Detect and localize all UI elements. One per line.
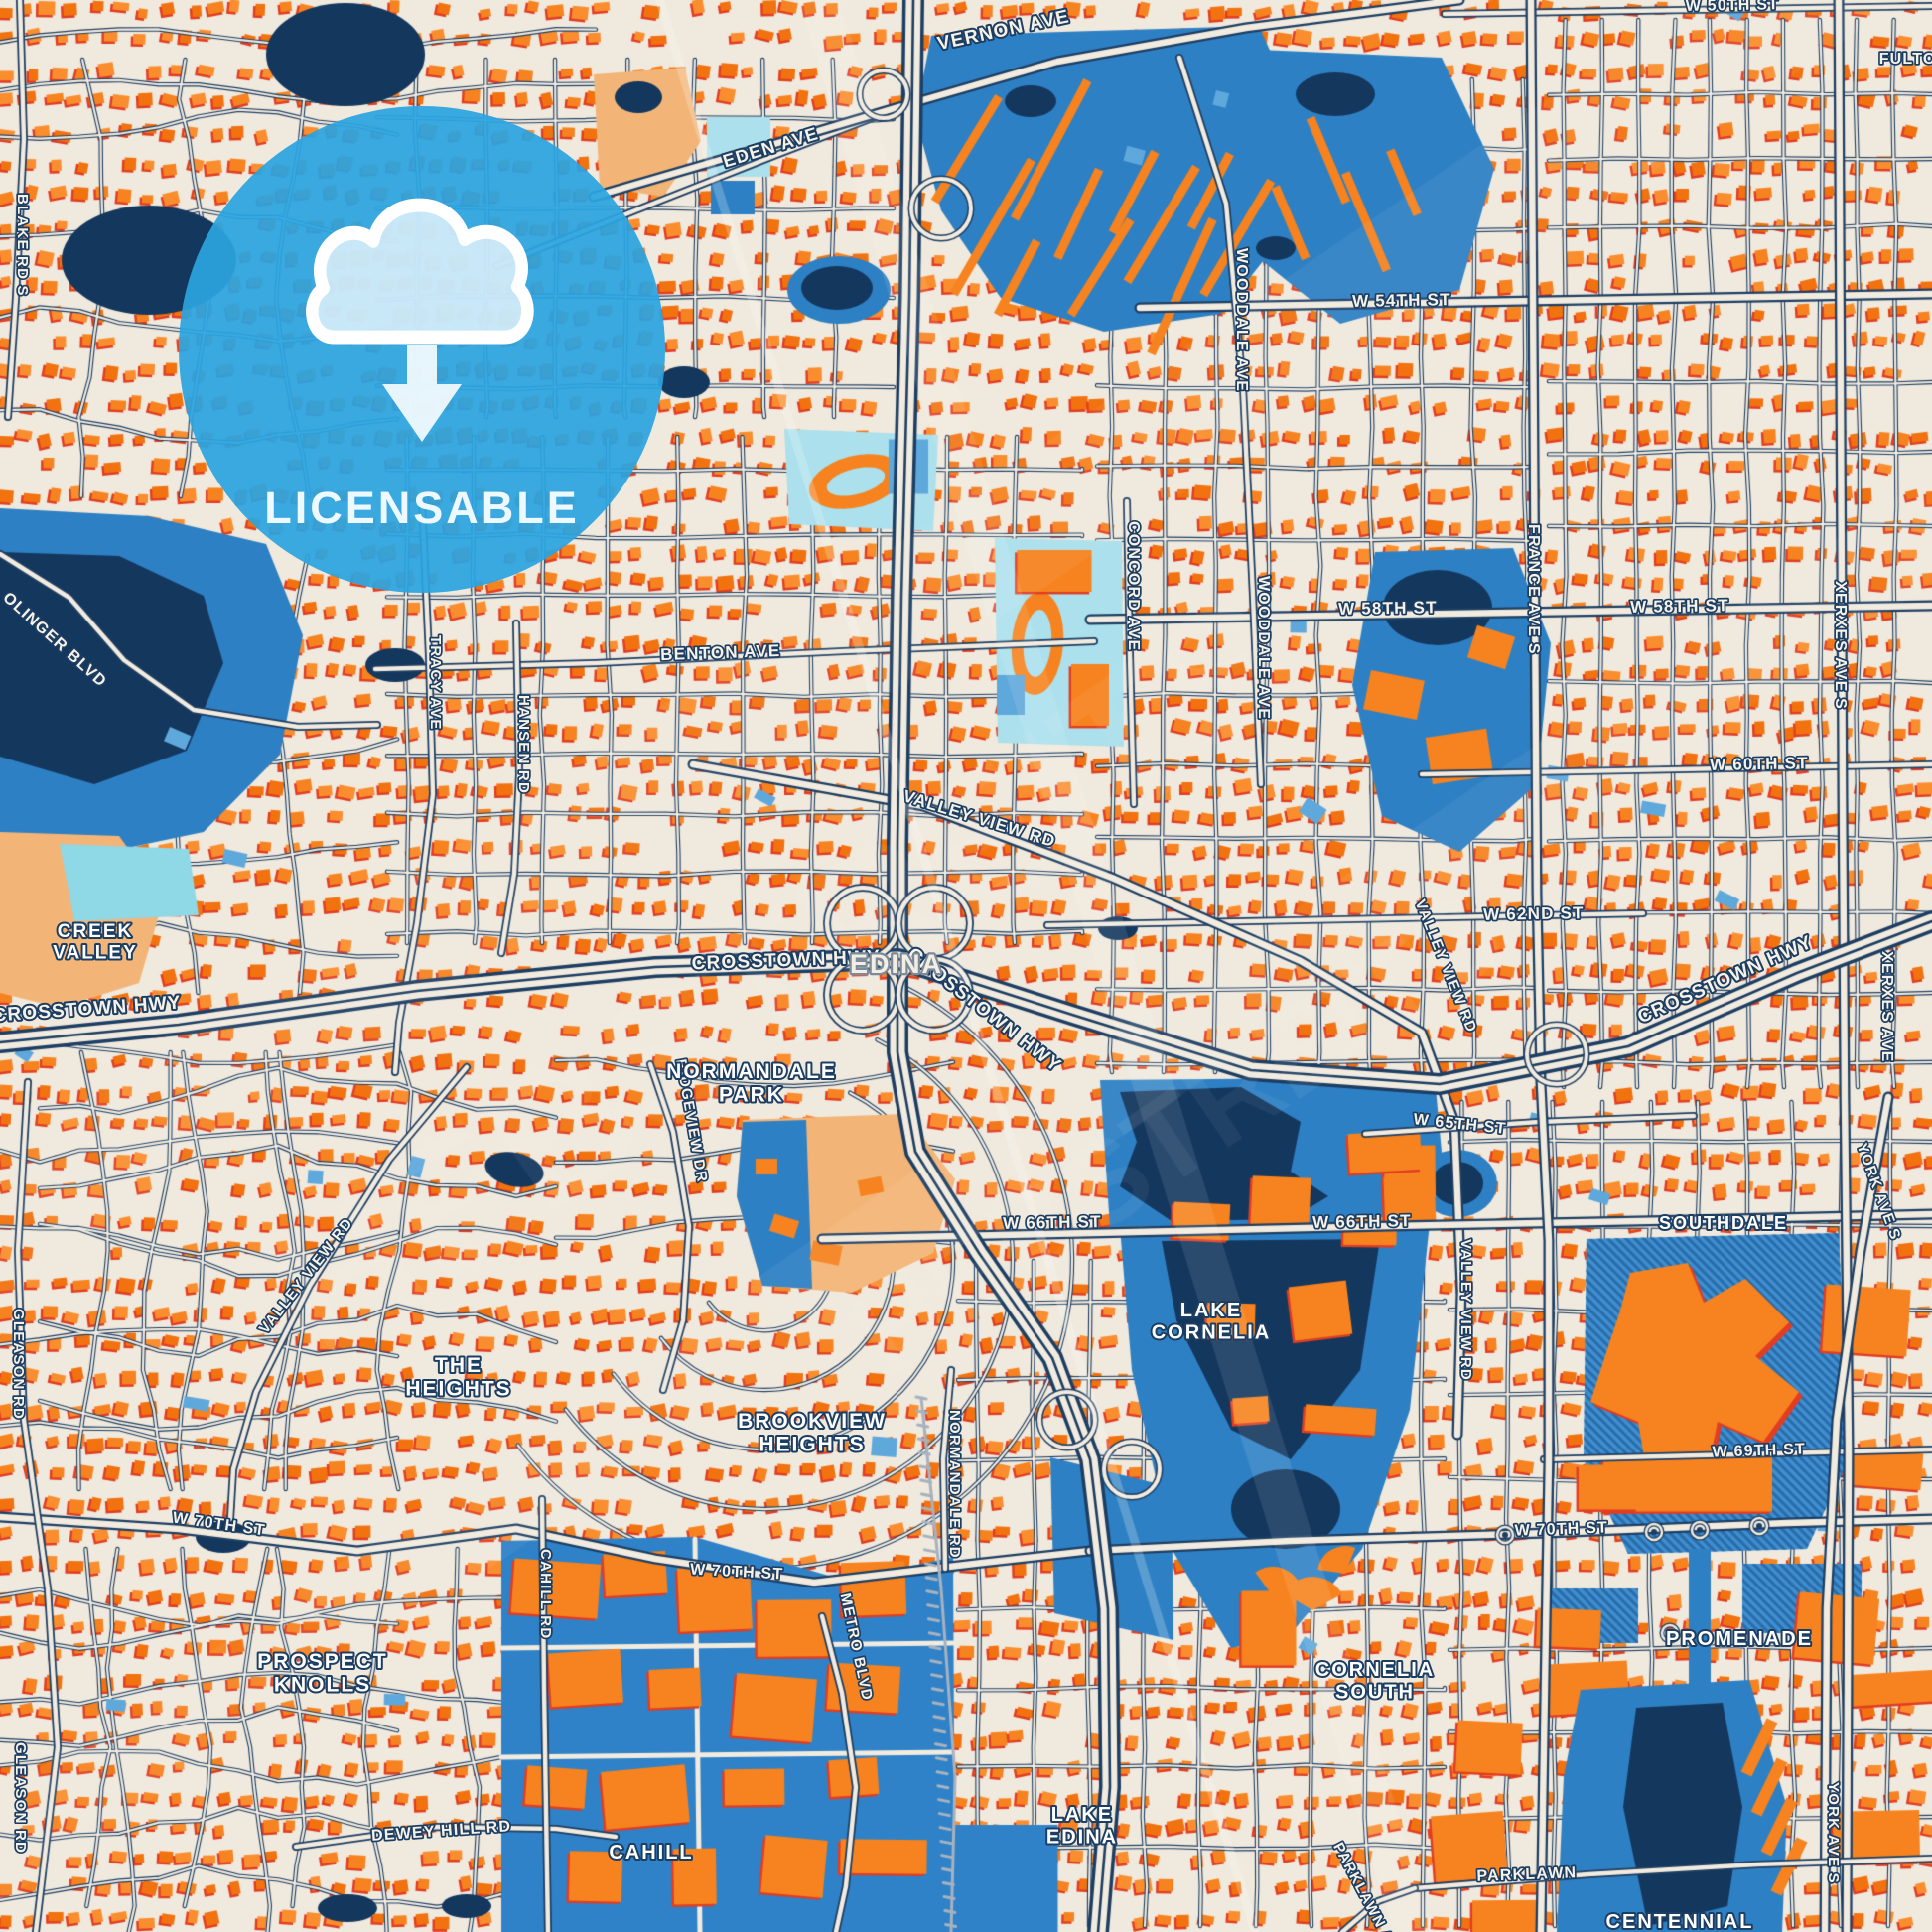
street-label-w-50th-st: W 50TH ST — [1686, 0, 1780, 15]
street-label-w-58th-st: W 58TH ST — [1338, 598, 1438, 619]
place-label-edina: EDINA — [850, 949, 943, 979]
street-label-olinger-blvd: OLINGER BLVD — [0, 589, 110, 690]
place-label-lake-cornelia: LAKECORNELIA — [1152, 1300, 1271, 1343]
place-label-brookview-heights: BROOKVIEWHEIGHTS — [738, 1410, 887, 1456]
licensable-badge: LICENSABLE — [179, 106, 665, 593]
place-label-prospect-knolls: PROSPECTKNOLLS — [257, 1650, 388, 1697]
place-label-lake-edina: LAKEEDINA — [1046, 1804, 1118, 1848]
street-label-normandale-rd: NORMANDALE RD — [946, 1410, 963, 1559]
street-label-gleason-rd: GLEASON RD — [10, 1309, 27, 1420]
street-label-benton-ave: BENTON AVE — [660, 641, 781, 664]
street-label-w-70th-st: W 70TH ST — [172, 1510, 267, 1540]
place-label-the-heights: THEHEIGHTS — [405, 1354, 511, 1401]
place-label-cahill: CAHILL — [609, 1842, 693, 1863]
street-label-valley-view-rd: VALLEY VIEW RD — [1412, 897, 1480, 1035]
street-label-blake-rd-s: BLAKE RD S — [14, 194, 31, 297]
street-label-w-66th-st: W 66TH ST — [1003, 1212, 1102, 1233]
street-label-wooddale-ave: WOODDALE AVE — [1255, 576, 1272, 720]
street-label-w-65th-st: W 65TH ST — [1413, 1111, 1508, 1138]
street-label-cahill-rd: CAHILL RD — [537, 1549, 554, 1639]
street-label-crosstown-hwy: CROSSTOWN HWY — [0, 992, 182, 1026]
street-label-w-70th-st: W 70TH ST — [1514, 1519, 1608, 1539]
street-label-xerxes-ave-s: XERXES AVE S — [1832, 581, 1849, 710]
street-label-w-69th-st: W 69TH ST — [1712, 1441, 1806, 1460]
street-label-concord-ave: CONCORD AVE — [1125, 521, 1142, 651]
street-label-parklawn-ave: PARKLAWN AVE — [1329, 1840, 1407, 1932]
place-label-creek-valley: CREEKVALLEY — [53, 921, 138, 963]
street-label-gleason-rd: GLEASON RD — [12, 1742, 29, 1854]
place-label-promenade: PROMENADE — [1666, 1628, 1813, 1650]
street-label-valley-view-rd: VALLEY VIEW RD — [1457, 1239, 1474, 1381]
street-label-metro-blvd: METRO BLVD — [837, 1591, 877, 1702]
street-label-york-ave-s: YORK AVE S — [1825, 1782, 1842, 1884]
street-label-w-60th-st: W 60TH ST — [1710, 754, 1809, 774]
street-label-vernon-ave: VERNON AVE — [935, 6, 1071, 55]
street-label-xerxes-ave: XERXES AVE — [1878, 951, 1895, 1062]
badge-label: LICENSABLE — [264, 483, 580, 533]
place-label-southdale: SOUTHDALE — [1659, 1213, 1788, 1233]
street-label-w-54th-st: W 54TH ST — [1352, 290, 1451, 311]
place-label-cornelia-south: CORNELIASOUTH — [1315, 1659, 1435, 1703]
street-label-parklawn: PARKLAWN — [1476, 1864, 1577, 1885]
street-label-tracy-ave: TRACY AVE — [427, 635, 444, 731]
street-label-valley-view-rd: VALLEY VIEW RD — [256, 1215, 356, 1337]
street-label-eden-ave: EDEN AVE — [721, 123, 821, 171]
street-label-w-62nd-st: W 62ND ST — [1483, 903, 1585, 924]
map-poster: VERNON AVEEDEN AVEW 50TH STFULTONW 54TH … — [0, 0, 1932, 1932]
street-label-dewey-hill-rd: DEWEY HILL RD — [371, 1818, 512, 1845]
place-label-centennial: CENTENNIAL — [1606, 1911, 1754, 1932]
street-label-france-ave-s: FRANCE AVE S — [1525, 524, 1542, 655]
street-label-w-58th-st: W 58TH ST — [1630, 596, 1729, 617]
street-label-w-66th-st: W 66TH ST — [1312, 1211, 1412, 1232]
street-label-crosstown-hwy: CROSSTOWN HWY — [1634, 932, 1816, 1029]
street-label-w-70th-st: W 70TH ST — [690, 1562, 784, 1584]
street-label-valley-view-rd: VALLEY VIEW RD — [900, 786, 1057, 851]
street-label-york-ave-s: YORK AVE S — [1854, 1141, 1904, 1242]
street-label-fulton: FULTON — [1879, 51, 1932, 68]
street-label-wooddale-ave: WOODDALE AVE — [1233, 248, 1250, 392]
street-label-hansen-rd: HANSEN RD — [515, 695, 532, 794]
